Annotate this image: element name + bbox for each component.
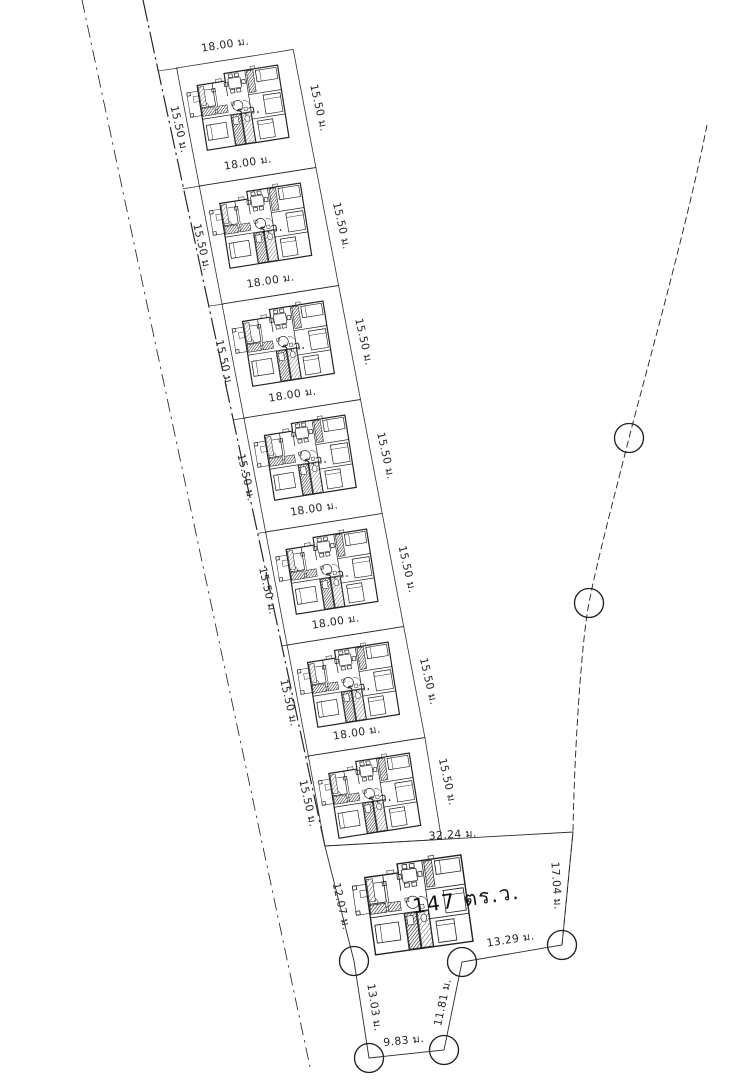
survey-marker-1 [615, 424, 644, 453]
east-boundary-line [562, 125, 707, 945]
dimension-label-left: 12.07 ม. [330, 881, 353, 931]
dimension-label-right: 15.50 ม. [396, 544, 419, 594]
house-group: ร.ว. [273, 526, 378, 616]
dimension-label-top: 18.00 ม. [311, 611, 361, 631]
site-plan-drawing: ร.ว.18.00 ม.15.50 ม.15.50 ม.ร.ว.18.00 ม.… [0, 0, 744, 1080]
dimension-label-right: 15.50 ม. [417, 656, 440, 706]
dimension-label-bottom: 9.83 ม. [383, 1032, 425, 1049]
dimension-label-right: 15.50 ม. [374, 431, 397, 481]
dimension-label-top: 18.00 ม. [223, 152, 273, 172]
house-group: ร.ว. [207, 180, 312, 270]
dimension-label-left: 15.50 ม. [190, 222, 213, 272]
dimension-extension-line [158, 68, 179, 71]
dimension-label-right: 17.04 ม. [548, 861, 564, 910]
dimension-extension-line [282, 645, 289, 646]
survey-marker-2 [575, 589, 604, 618]
plot-area-label: ร.ว. [258, 219, 284, 238]
house-group: ร.ว. [230, 298, 335, 388]
house-group: ร.ว. [316, 750, 421, 840]
plot-area-label: ร.ว. [324, 565, 350, 584]
house-group: ร.ว. [295, 639, 400, 729]
dimension-label-top: 18.00 ม. [246, 270, 296, 290]
house-group: ร.ว. [251, 412, 356, 502]
dimension-label-left: 15.50 ม. [234, 452, 257, 502]
dimension-label-lower-left: 13.03 ม. [364, 983, 384, 1033]
dimension-label-top: 18.00 ม. [268, 384, 318, 404]
road-centerline-dashdot [82, 0, 310, 1067]
dimension-extension-line [183, 186, 201, 189]
plot-area-label: ร.ว. [367, 789, 393, 808]
dimension-label-top: 18.00 ม. [332, 722, 382, 742]
plot-area-label: ร.ว. [302, 451, 328, 470]
large-plot: 147 ตร.ว.32.24 ม.17.04 ม.13.29 ม.11.81 ม… [325, 826, 573, 1058]
dimension-label-top: 18.00 ม. [200, 34, 250, 54]
plot-area-label: ร.ว. [346, 678, 372, 697]
dimension-label-right: 15.50 ม. [352, 317, 375, 367]
dimension-label-left: 15.50 ม. [256, 566, 279, 616]
dimension-extension-line [208, 304, 224, 306]
dimension-label-right: 15.50 ม. [436, 757, 459, 807]
site-plan-canvas: ร.ว.18.00 ม.15.50 ม.15.50 ม.ร.ว.18.00 ม.… [0, 0, 744, 1080]
dimension-label-left: 15.50 ม. [277, 678, 300, 728]
dimension-label-top: 32.24 ม. [428, 826, 477, 842]
dimension-label-left: 15.50 ม. [213, 338, 236, 388]
dimension-label-lower-right: 13.29 ม. [486, 929, 536, 949]
house-group: ร.ว. [184, 62, 289, 152]
plot-area-label: ร.ว. [281, 337, 307, 356]
dimension-label-right: 15.50 ม. [330, 201, 353, 251]
plot-area-label: ร.ว. [235, 101, 261, 120]
dimension-label-right: 15.50 ม. [307, 83, 330, 133]
dimension-label-top: 18.00 ม. [289, 498, 339, 518]
